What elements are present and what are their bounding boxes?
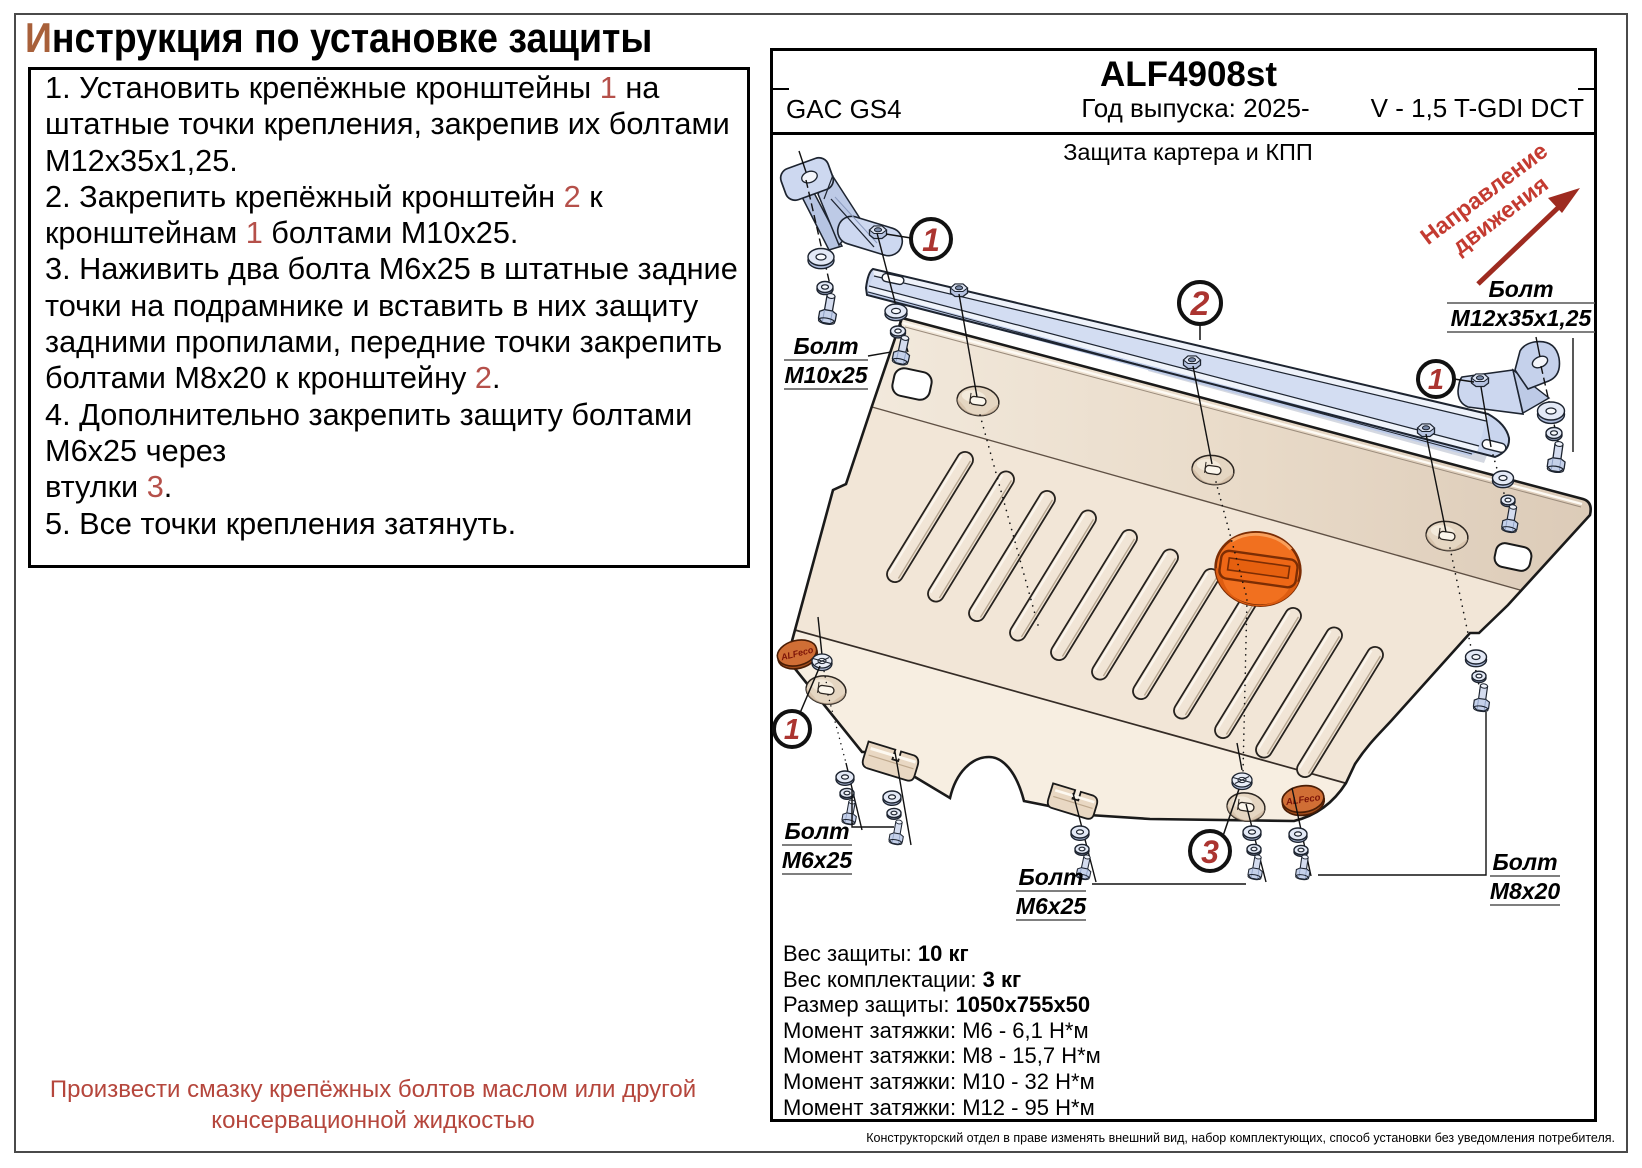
svg-text:1: 1: [922, 222, 940, 258]
svg-text:2: 2: [1190, 285, 1210, 323]
svg-text:М12х35х1,25: М12х35х1,25: [1451, 305, 1593, 331]
svg-text:Болт: Болт: [784, 818, 849, 844]
svg-text:1: 1: [784, 714, 800, 746]
svg-text:М10х25: М10х25: [784, 362, 868, 388]
svg-text:М6х25: М6х25: [1016, 893, 1088, 919]
svg-text:Болт: Болт: [1488, 276, 1553, 302]
svg-text:Болт: Болт: [793, 333, 858, 359]
svg-text:Болт: Болт: [1018, 864, 1083, 890]
svg-text:М8х20: М8х20: [1490, 878, 1561, 904]
svg-text:Болт: Болт: [1492, 849, 1557, 875]
svg-text:3: 3: [1201, 834, 1219, 870]
svg-text:1: 1: [1428, 364, 1444, 396]
svg-text:М6х25: М6х25: [782, 847, 854, 873]
